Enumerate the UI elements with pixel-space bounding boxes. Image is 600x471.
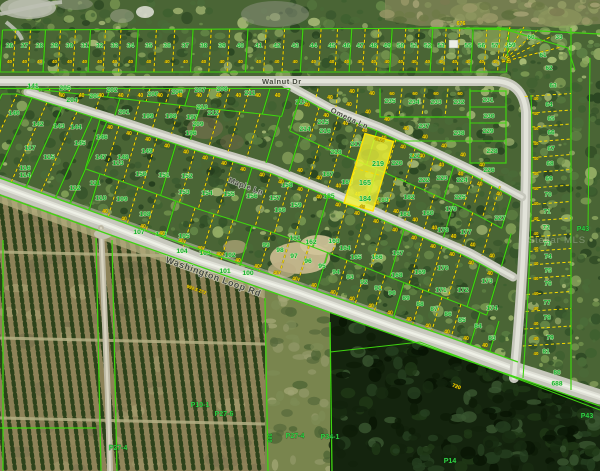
svg-text:40: 40 <box>479 163 485 169</box>
svg-text:151: 151 <box>158 172 170 179</box>
svg-text:210: 210 <box>196 104 208 111</box>
svg-text:40: 40 <box>52 59 58 64</box>
svg-text:71: 71 <box>543 209 551 216</box>
svg-text:40: 40 <box>297 168 303 174</box>
svg-text:146: 146 <box>96 134 108 141</box>
svg-text:96: 96 <box>304 258 312 265</box>
svg-text:40: 40 <box>259 173 265 179</box>
svg-text:40: 40 <box>219 59 225 64</box>
svg-text:83: 83 <box>488 335 496 342</box>
svg-text:38: 38 <box>200 43 208 50</box>
svg-text:205: 205 <box>59 85 71 92</box>
svg-text:40: 40 <box>118 93 124 99</box>
svg-text:56: 56 <box>478 43 486 50</box>
svg-text:211: 211 <box>245 90 256 97</box>
svg-text:184: 184 <box>359 194 371 203</box>
svg-text:P14: P14 <box>444 458 457 465</box>
svg-text:40: 40 <box>112 59 118 64</box>
svg-text:112: 112 <box>70 185 81 192</box>
svg-text:Walnut Dr: Walnut Dr <box>262 77 302 86</box>
svg-text:91: 91 <box>374 285 382 292</box>
svg-text:40: 40 <box>534 141 539 146</box>
svg-text:40: 40 <box>458 172 464 178</box>
svg-text:115: 115 <box>44 154 55 161</box>
svg-text:109: 109 <box>116 196 128 203</box>
svg-text:173: 173 <box>481 278 493 285</box>
svg-text:40: 40 <box>22 59 28 64</box>
svg-text:40: 40 <box>278 179 284 185</box>
svg-text:40: 40 <box>354 211 360 217</box>
svg-text:40: 40 <box>465 59 471 64</box>
svg-text:40: 40 <box>452 59 458 64</box>
svg-text:40: 40 <box>477 181 483 187</box>
svg-text:40: 40 <box>196 93 202 99</box>
svg-text:104: 104 <box>176 248 188 255</box>
svg-text:117: 117 <box>25 145 36 152</box>
svg-text:40: 40 <box>534 351 539 356</box>
svg-text:40: 40 <box>107 125 113 131</box>
svg-text:P10-1: P10-1 <box>191 402 210 409</box>
svg-text:64: 64 <box>545 102 553 109</box>
svg-text:42: 42 <box>273 43 281 50</box>
svg-text:60: 60 <box>389 91 395 97</box>
svg-text:40: 40 <box>316 176 322 182</box>
svg-text:40: 40 <box>438 59 444 64</box>
svg-text:40: 40 <box>330 290 336 296</box>
svg-text:41: 41 <box>255 43 263 50</box>
svg-text:33: 33 <box>555 34 563 41</box>
svg-text:110: 110 <box>96 195 107 202</box>
svg-text:40: 40 <box>316 195 322 201</box>
svg-text:40: 40 <box>323 113 329 119</box>
svg-text:40: 40 <box>138 93 144 99</box>
svg-text:90: 90 <box>388 290 396 297</box>
svg-text:40: 40 <box>534 306 539 311</box>
svg-text:65: 65 <box>547 116 555 123</box>
svg-text:40: 40 <box>202 156 208 162</box>
svg-text:40: 40 <box>392 227 398 233</box>
svg-text:161: 161 <box>289 235 301 242</box>
svg-text:86: 86 <box>444 311 452 318</box>
svg-text:40: 40 <box>419 153 425 159</box>
svg-text:40: 40 <box>126 131 132 137</box>
svg-text:69: 69 <box>545 176 553 183</box>
svg-text:40: 40 <box>496 192 502 198</box>
svg-text:40: 40 <box>297 187 303 193</box>
svg-text:40: 40 <box>534 216 539 221</box>
svg-text:40: 40 <box>349 89 355 95</box>
svg-text:40: 40 <box>329 59 335 64</box>
svg-text:227: 227 <box>494 215 506 222</box>
svg-text:140: 140 <box>8 110 20 117</box>
svg-text:37: 37 <box>182 43 190 50</box>
svg-text:149: 149 <box>141 148 153 155</box>
svg-text:P43: P43 <box>581 413 594 420</box>
svg-text:204: 204 <box>66 97 78 104</box>
svg-text:85: 85 <box>458 317 466 324</box>
svg-text:40: 40 <box>293 59 299 64</box>
svg-text:40: 40 <box>335 203 341 209</box>
svg-text:238: 238 <box>453 130 465 137</box>
svg-text:60: 60 <box>412 91 418 97</box>
svg-text:40: 40 <box>98 93 104 99</box>
svg-text:100: 100 <box>242 270 254 277</box>
svg-text:216: 216 <box>319 128 331 135</box>
svg-text:197: 197 <box>186 114 198 121</box>
svg-text:40: 40 <box>238 59 244 64</box>
svg-text:59: 59 <box>508 42 516 49</box>
svg-text:40: 40 <box>255 93 261 99</box>
svg-text:40: 40 <box>468 261 474 267</box>
svg-text:217: 217 <box>350 141 362 148</box>
svg-text:45: 45 <box>328 43 336 50</box>
svg-text:157: 157 <box>269 195 281 202</box>
svg-text:179: 179 <box>445 206 457 213</box>
svg-text:61: 61 <box>539 52 547 59</box>
svg-text:187: 187 <box>322 171 334 178</box>
svg-text:155: 155 <box>223 191 235 198</box>
svg-text:40: 40 <box>237 43 245 50</box>
svg-text:145: 145 <box>74 140 86 147</box>
svg-text:177: 177 <box>460 229 472 236</box>
svg-text:229: 229 <box>482 128 494 135</box>
svg-text:49: 49 <box>383 43 391 50</box>
svg-text:51: 51 <box>410 43 418 50</box>
svg-text:40: 40 <box>463 336 469 342</box>
svg-text:40: 40 <box>146 59 152 64</box>
svg-text:215: 215 <box>317 119 329 126</box>
svg-text:40: 40 <box>37 59 43 64</box>
svg-text:77: 77 <box>543 300 551 307</box>
svg-text:40: 40 <box>201 59 207 64</box>
svg-text:95: 95 <box>318 263 326 270</box>
svg-text:201: 201 <box>118 109 130 116</box>
svg-text:60: 60 <box>457 91 463 97</box>
svg-text:113: 113 <box>113 160 124 167</box>
svg-text:31: 31 <box>81 43 89 50</box>
svg-text:40: 40 <box>349 297 355 303</box>
svg-text:P27-4: P27-4 <box>109 445 128 452</box>
svg-text:40: 40 <box>422 135 428 141</box>
svg-text:224: 224 <box>456 177 468 184</box>
svg-text:235: 235 <box>384 98 396 105</box>
svg-text:160: 160 <box>274 207 286 214</box>
svg-text:169: 169 <box>414 269 426 276</box>
svg-text:40: 40 <box>240 167 246 173</box>
svg-text:40: 40 <box>384 117 390 123</box>
svg-text:218: 218 <box>330 149 342 156</box>
svg-text:40: 40 <box>311 59 317 64</box>
svg-text:93: 93 <box>346 274 354 281</box>
svg-text:40: 40 <box>183 59 189 64</box>
svg-text:80: 80 <box>553 370 561 377</box>
svg-text:171: 171 <box>435 287 447 294</box>
svg-text:40: 40 <box>67 59 73 64</box>
svg-text:40: 40 <box>371 59 377 64</box>
svg-text:180: 180 <box>422 210 434 217</box>
svg-text:168: 168 <box>391 272 403 279</box>
svg-text:989: 989 <box>266 433 272 442</box>
svg-text:225: 225 <box>454 194 466 201</box>
svg-text:67: 67 <box>547 146 555 153</box>
svg-text:40: 40 <box>430 244 436 250</box>
svg-text:40: 40 <box>534 336 539 341</box>
svg-text:232: 232 <box>453 99 465 106</box>
svg-text:47: 47 <box>356 43 364 50</box>
svg-text:163: 163 <box>328 238 340 245</box>
svg-text:66: 66 <box>547 130 555 137</box>
svg-text:98: 98 <box>276 247 284 254</box>
svg-text:116: 116 <box>20 165 31 172</box>
svg-text:40: 40 <box>304 103 310 109</box>
svg-text:142: 142 <box>32 121 44 128</box>
svg-text:40: 40 <box>79 93 85 99</box>
svg-text:P43: P43 <box>577 226 590 233</box>
svg-text:40: 40 <box>292 276 298 282</box>
svg-text:40: 40 <box>327 95 333 101</box>
svg-text:40: 40 <box>357 59 363 64</box>
svg-text:40: 40 <box>534 156 539 161</box>
svg-text:40: 40 <box>441 144 447 150</box>
svg-text:40: 40 <box>216 93 222 99</box>
svg-text:159: 159 <box>290 202 302 209</box>
svg-text:40: 40 <box>439 162 445 168</box>
svg-text:52: 52 <box>424 43 432 50</box>
svg-text:230: 230 <box>483 113 495 120</box>
svg-text:78: 78 <box>543 315 551 322</box>
svg-text:196: 196 <box>185 130 197 137</box>
svg-text:70: 70 <box>544 192 552 199</box>
svg-text:219: 219 <box>372 159 384 168</box>
svg-text:165: 165 <box>359 178 371 187</box>
svg-text:40: 40 <box>274 59 280 64</box>
svg-text:40: 40 <box>451 234 457 240</box>
svg-text:231: 231 <box>482 97 494 104</box>
svg-text:40: 40 <box>59 93 65 99</box>
svg-text:50: 50 <box>397 43 405 50</box>
svg-text:40: 40 <box>479 59 485 64</box>
svg-text:40: 40 <box>336 184 342 190</box>
svg-text:40: 40 <box>534 261 539 266</box>
svg-text:40: 40 <box>128 59 134 64</box>
svg-text:166: 166 <box>371 254 383 261</box>
svg-text:40: 40 <box>256 59 262 64</box>
svg-text:28: 28 <box>36 43 44 50</box>
svg-text:688: 688 <box>551 381 562 388</box>
svg-text:40: 40 <box>165 59 171 64</box>
svg-text:111: 111 <box>90 180 101 187</box>
svg-text:79: 79 <box>546 335 554 342</box>
svg-text:35: 35 <box>145 43 153 50</box>
svg-text:40: 40 <box>398 59 404 64</box>
svg-text:43: 43 <box>292 43 300 50</box>
svg-text:209: 209 <box>192 121 204 128</box>
svg-text:62: 62 <box>545 65 553 72</box>
svg-text:81: 81 <box>542 349 550 356</box>
svg-text:40: 40 <box>534 246 539 251</box>
svg-text:40: 40 <box>311 283 317 289</box>
svg-text:40: 40 <box>534 171 539 176</box>
svg-text:36: 36 <box>163 43 171 50</box>
svg-text:P27-4: P27-4 <box>286 433 305 440</box>
svg-text:40: 40 <box>534 186 539 191</box>
svg-text:202: 202 <box>106 87 118 94</box>
svg-text:234: 234 <box>408 99 420 106</box>
svg-text:87: 87 <box>430 306 438 313</box>
svg-text:40: 40 <box>346 102 352 108</box>
svg-text:143: 143 <box>53 123 65 130</box>
svg-text:40: 40 <box>393 209 399 215</box>
svg-text:40: 40 <box>534 321 539 326</box>
svg-text:89: 89 <box>402 295 410 302</box>
svg-text:40: 40 <box>432 226 438 232</box>
svg-text:40: 40 <box>482 343 488 349</box>
svg-text:153: 153 <box>178 189 190 196</box>
svg-text:40: 40 <box>444 330 450 336</box>
svg-text:199: 199 <box>142 113 154 120</box>
svg-text:40: 40 <box>534 126 539 131</box>
svg-text:40: 40 <box>7 59 13 64</box>
svg-text:76: 76 <box>544 281 552 288</box>
svg-text:40: 40 <box>369 91 375 97</box>
svg-text:Stellar MLS: Stellar MLS <box>528 235 586 246</box>
svg-text:55: 55 <box>464 43 472 50</box>
svg-text:40: 40 <box>82 59 88 64</box>
svg-text:88: 88 <box>416 301 424 308</box>
svg-text:40: 40 <box>384 59 390 64</box>
svg-text:214: 214 <box>299 126 311 133</box>
svg-text:40: 40 <box>411 59 417 64</box>
svg-text:40: 40 <box>365 109 371 115</box>
svg-text:75: 75 <box>544 268 552 275</box>
svg-text:44: 44 <box>310 43 318 50</box>
svg-text:40: 40 <box>425 59 431 64</box>
svg-text:39: 39 <box>218 43 226 50</box>
svg-text:222: 222 <box>418 177 430 184</box>
svg-text:33: 33 <box>111 43 119 50</box>
svg-text:40: 40 <box>487 271 493 277</box>
svg-text:212: 212 <box>207 110 219 117</box>
svg-text:40: 40 <box>534 111 539 116</box>
svg-text:40: 40 <box>534 96 539 101</box>
svg-text:114: 114 <box>20 172 31 179</box>
svg-text:178: 178 <box>437 227 449 234</box>
svg-text:40: 40 <box>177 93 183 99</box>
svg-text:74: 74 <box>544 254 552 261</box>
svg-text:182: 182 <box>403 194 415 201</box>
svg-text:676: 676 <box>457 21 466 27</box>
svg-text:233: 233 <box>430 99 442 106</box>
svg-text:40: 40 <box>275 93 281 99</box>
svg-text:144: 144 <box>70 124 82 131</box>
svg-text:154: 154 <box>201 190 213 197</box>
svg-text:164: 164 <box>339 245 351 252</box>
svg-text:72: 72 <box>542 225 550 232</box>
svg-text:27: 27 <box>21 43 29 50</box>
svg-text:40: 40 <box>236 93 242 99</box>
svg-text:40: 40 <box>164 143 170 149</box>
svg-text:P27-6: P27-6 <box>215 411 234 418</box>
svg-text:148: 148 <box>117 154 129 161</box>
svg-text:94: 94 <box>332 269 340 276</box>
svg-text:237: 237 <box>418 123 430 130</box>
svg-text:60: 60 <box>433 91 439 97</box>
svg-text:40: 40 <box>425 323 431 329</box>
svg-text:30: 30 <box>66 43 74 50</box>
svg-text:68: 68 <box>546 161 554 168</box>
svg-text:167: 167 <box>392 250 404 257</box>
svg-text:172: 172 <box>457 287 469 294</box>
svg-text:84: 84 <box>474 323 482 330</box>
svg-text:53: 53 <box>437 43 445 50</box>
svg-text:170: 170 <box>437 265 449 272</box>
svg-text:40: 40 <box>489 253 495 259</box>
svg-text:40: 40 <box>97 59 103 64</box>
svg-text:102: 102 <box>224 252 236 259</box>
svg-text:162: 162 <box>305 239 317 246</box>
svg-text:226: 226 <box>483 167 495 174</box>
svg-text:165: 165 <box>350 254 362 261</box>
svg-text:40: 40 <box>411 236 417 242</box>
svg-text:99: 99 <box>262 242 270 249</box>
svg-text:220: 220 <box>391 160 403 167</box>
svg-text:228: 228 <box>486 148 498 155</box>
svg-text:40: 40 <box>534 276 539 281</box>
svg-text:40: 40 <box>344 59 350 64</box>
svg-text:P34-1: P34-1 <box>321 434 340 441</box>
svg-text:29: 29 <box>51 43 59 50</box>
svg-text:150: 150 <box>135 171 147 178</box>
svg-text:92: 92 <box>360 279 368 286</box>
svg-text:48: 48 <box>370 43 378 50</box>
svg-text:40: 40 <box>145 137 151 143</box>
svg-text:40: 40 <box>373 219 379 225</box>
svg-text:40: 40 <box>400 145 406 151</box>
svg-text:40: 40 <box>183 149 189 155</box>
svg-text:223: 223 <box>436 175 448 182</box>
svg-text:40: 40 <box>449 252 455 258</box>
svg-text:63: 63 <box>549 83 557 90</box>
svg-text:40: 40 <box>534 201 539 206</box>
svg-text:46: 46 <box>343 43 351 50</box>
svg-text:181: 181 <box>399 211 411 218</box>
svg-text:147: 147 <box>95 154 107 161</box>
svg-text:26: 26 <box>6 43 14 50</box>
svg-text:40: 40 <box>157 93 163 99</box>
svg-text:152: 152 <box>181 173 193 180</box>
svg-text:97: 97 <box>290 253 298 260</box>
svg-text:40: 40 <box>102 209 108 215</box>
svg-text:57: 57 <box>491 43 499 50</box>
svg-text:208: 208 <box>216 86 228 93</box>
svg-text:40: 40 <box>403 126 409 132</box>
svg-text:60: 60 <box>527 34 535 41</box>
svg-text:40: 40 <box>492 59 498 64</box>
svg-text:32: 32 <box>96 43 104 50</box>
svg-text:40: 40 <box>470 243 476 249</box>
svg-text:174: 174 <box>486 305 498 312</box>
svg-text:40: 40 <box>221 161 227 167</box>
svg-text:40: 40 <box>534 291 539 296</box>
svg-text:34: 34 <box>127 43 135 50</box>
svg-text:198: 198 <box>165 113 177 120</box>
svg-text:40: 40 <box>412 217 418 223</box>
svg-text:40: 40 <box>460 153 466 159</box>
